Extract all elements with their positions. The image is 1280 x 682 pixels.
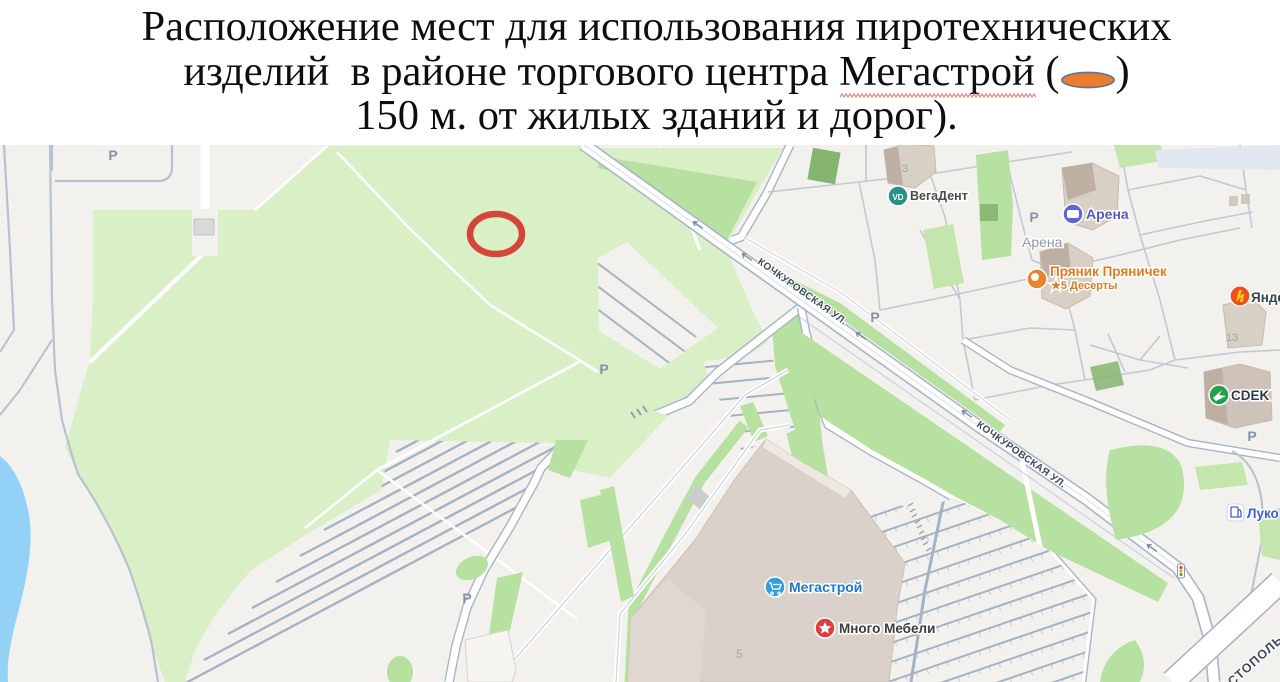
svg-text:Пряник Пряничек: Пряник Пряничек: [1050, 264, 1167, 279]
svg-text:CDEK: CDEK: [1231, 388, 1270, 403]
svg-text:P: P: [1247, 428, 1256, 444]
svg-text:P: P: [108, 147, 117, 163]
svg-text:P: P: [1029, 209, 1038, 225]
svg-text:Арена: Арена: [1086, 206, 1129, 222]
svg-text:Много Мебели: Много Мебели: [839, 621, 935, 636]
svg-text:13: 13: [1226, 332, 1238, 344]
svg-text:Луко: Луко: [1247, 506, 1279, 521]
svg-text:Арена: Арена: [1022, 234, 1063, 250]
svg-text:ВегаДент: ВегаДент: [910, 189, 968, 203]
svg-text:P: P: [599, 361, 608, 377]
svg-text:Мегастрой: Мегастрой: [789, 579, 862, 595]
svg-text:VD: VD: [892, 193, 903, 202]
svg-text:Яндекс: Яндекс: [1251, 290, 1280, 305]
svg-text:P: P: [870, 309, 879, 325]
svg-text:3: 3: [902, 163, 908, 175]
svg-text:5: 5: [736, 647, 743, 661]
svg-text:★5 Десерты: ★5 Десерты: [1051, 280, 1118, 292]
svg-text:P: P: [462, 590, 471, 606]
